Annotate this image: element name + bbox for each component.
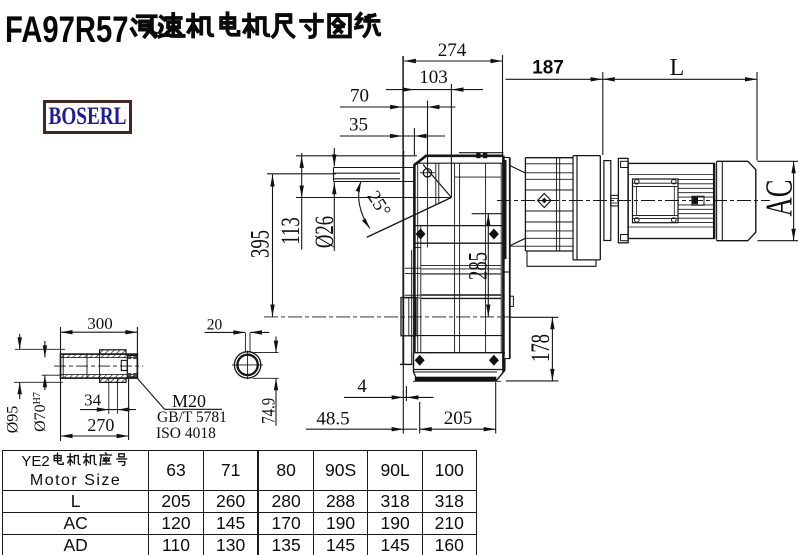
svg-text:205: 205 [444, 408, 473, 429]
svg-text:274: 274 [438, 40, 467, 61]
svg-text:113: 113 [276, 217, 305, 244]
svg-text:L: L [670, 55, 685, 81]
svg-text:103: 103 [419, 67, 448, 88]
svg-text:34: 34 [84, 391, 102, 410]
svg-text:187: 187 [532, 58, 564, 79]
svg-text:20: 20 [207, 317, 223, 334]
svg-text:Ø26: Ø26 [310, 216, 339, 248]
svg-text:48.5: 48.5 [316, 409, 349, 430]
svg-text:M20: M20 [172, 391, 206, 411]
svg-text:25°: 25° [363, 187, 395, 221]
svg-text:270: 270 [87, 415, 114, 435]
svg-text:285: 285 [463, 252, 492, 280]
svg-text:ISO 4018: ISO 4018 [156, 425, 216, 442]
svg-text:Ø70H7: Ø70H7 [32, 392, 49, 432]
svg-text:395: 395 [246, 230, 275, 258]
svg-text:70: 70 [350, 86, 369, 107]
svg-text:300: 300 [87, 314, 113, 333]
svg-text:74.9: 74.9 [258, 398, 279, 424]
svg-text:Ø95: Ø95 [5, 406, 22, 434]
svg-text:AC: AC [759, 180, 800, 217]
svg-text:GB/T 5781: GB/T 5781 [157, 409, 227, 426]
svg-text:178: 178 [526, 334, 555, 362]
svg-text:4: 4 [357, 376, 367, 397]
svg-text:35: 35 [349, 115, 368, 136]
